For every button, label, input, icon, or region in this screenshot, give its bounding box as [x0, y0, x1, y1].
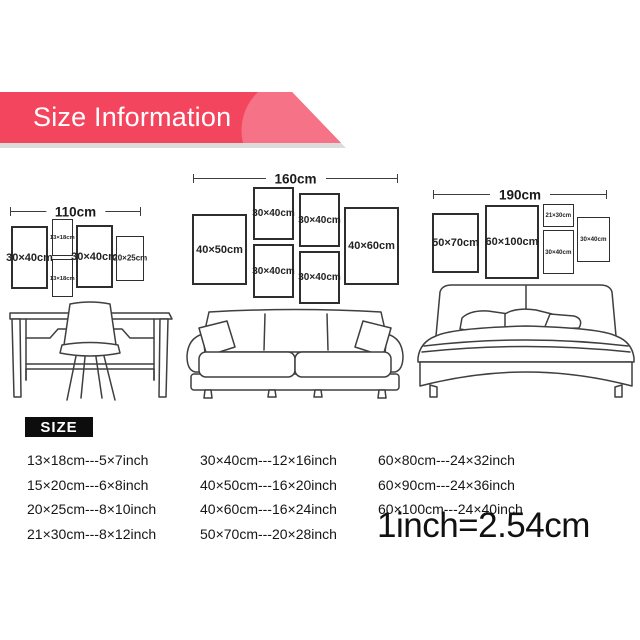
size-row: 20×25cm---8×10inch [27, 497, 156, 522]
size-row: 13×18cm---5×7inch [27, 448, 156, 473]
frame-30x40: 30×40cm [577, 217, 610, 262]
banner-shadow [0, 143, 346, 148]
banner-swoosh [241, 92, 341, 143]
sofa-illustration [181, 300, 409, 400]
frame-30x40: 30×40cm [299, 193, 340, 247]
frame-40x60: 40×60cm [344, 207, 399, 285]
frame-40x50: 40×50cm [192, 214, 247, 285]
measure-label: 160cm [265, 171, 325, 186]
frame-60x100: 60×100cm [485, 205, 539, 279]
size-information-infographic: Size Information 110cm 30×40cm 13×18cm 1… [0, 0, 640, 640]
bed-illustration [412, 284, 640, 402]
size-row: 50×70cm---20×28inch [200, 522, 337, 547]
size-row: 15×20cm---6×8inch [27, 473, 156, 498]
frame-30x40: 30×40cm [253, 244, 294, 298]
frame-21x30: 21×30cm [543, 204, 574, 227]
desk-chair-illustration [6, 300, 174, 404]
size-badge: SIZE [25, 417, 93, 437]
frame-30x40: 30×40cm [253, 187, 294, 240]
size-row: 21×30cm---8×12inch [27, 522, 156, 547]
frame-30x40: 30×40cm [76, 225, 113, 288]
size-column-1: 13×18cm---5×7inch 15×20cm---6×8inch 20×2… [27, 448, 156, 546]
measure-line-160cm: 160cm [193, 174, 398, 183]
size-row: 40×50cm---16×20inch [200, 473, 337, 498]
measure-label: 190cm [490, 187, 550, 202]
measure-line-110cm: 110cm [10, 207, 141, 216]
measure-tick-right [606, 190, 607, 199]
size-row: 60×90cm---24×36inch [378, 473, 523, 498]
size-row: 60×80cm---24×32inch [378, 448, 523, 473]
frame-13x18: 13×18cm [52, 259, 73, 297]
inch-cm-conversion: 1inch=2.54cm [377, 506, 590, 546]
measure-tick-right [397, 174, 398, 183]
size-row: 30×40cm---12×16inch [200, 448, 337, 473]
size-row: 40×60cm---16×24inch [200, 497, 337, 522]
measure-label: 110cm [46, 204, 105, 219]
frame-30x40: 30×40cm [11, 226, 48, 289]
frame-13x18: 13×18cm [52, 219, 73, 256]
frame-50x70: 50×70cm [432, 213, 479, 273]
frame-30x40: 30×40cm [543, 230, 574, 274]
frame-20x25: 20×25cm [116, 236, 144, 281]
banner-title: Size Information [33, 99, 231, 135]
frame-30x40: 30×40cm [299, 251, 340, 304]
measure-line-190cm: 190cm [433, 190, 607, 199]
measure-tick-left [433, 190, 434, 199]
measure-tick-left [193, 174, 194, 183]
size-column-2: 30×40cm---12×16inch 40×50cm---16×20inch … [200, 448, 337, 546]
measure-tick-right [140, 207, 141, 216]
measure-tick-left [10, 207, 11, 216]
